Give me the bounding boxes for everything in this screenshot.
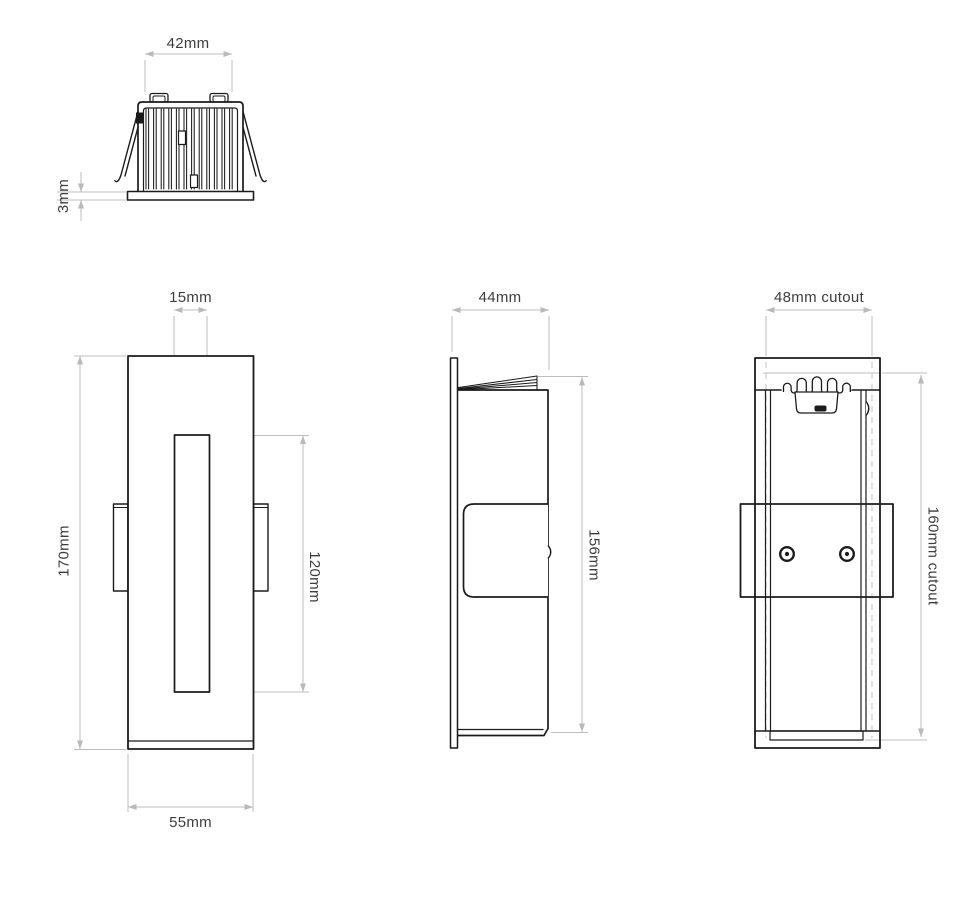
wire-port [136, 113, 144, 124]
dim-body-height: 170mm [56, 356, 127, 750]
dim-cutout-height: 160mm cutout [865, 373, 942, 740]
dim-body-width: 55mm [128, 754, 253, 831]
mounting-bracket [741, 504, 894, 597]
rear-view: 48mm cutout 160mm cutout [741, 289, 942, 748]
dimension-label: 170mm [56, 525, 73, 577]
extension-line [766, 316, 872, 356]
extension-line [128, 754, 253, 812]
extension-line [145, 60, 232, 92]
faceplate [128, 356, 254, 749]
dim-cutout-width: 48mm cutout [766, 289, 872, 356]
top-view: 42mm 3mm [55, 35, 266, 221]
dimension-label: 160mm cutout [925, 507, 942, 606]
dimension-label: 48mm cutout [774, 289, 865, 306]
fin-detail-bottom [191, 175, 198, 188]
extension-line [865, 373, 927, 740]
fixing-tab-right [254, 504, 269, 591]
spring-clip-rear [784, 377, 851, 394]
dimension-label: 42mm [167, 35, 210, 52]
dimension-label: 156mm [586, 529, 603, 581]
dimension-label: 55mm [169, 814, 212, 831]
technical-drawing: 42mm 3mm 15mm [0, 0, 974, 910]
spring-clip-side [459, 376, 538, 390]
dim-plate-thickness: 3mm [55, 172, 126, 221]
dimension-label: 3mm [55, 179, 72, 213]
screw-center [785, 552, 789, 556]
screw-right [840, 547, 854, 561]
dim-heatsink-width: 42mm [145, 35, 232, 92]
fixing-tab-left [114, 504, 129, 591]
dimension-label: 120mm [306, 551, 323, 603]
clip-latch [815, 406, 827, 412]
screw-left [780, 547, 794, 561]
rear-knob [866, 402, 869, 416]
driver-box [464, 504, 549, 597]
extension-line [452, 316, 549, 370]
dimension-label: 15mm [169, 289, 212, 306]
fin-detail-mid [179, 131, 186, 145]
drawing-page: 42mm 3mm 15mm [0, 0, 974, 910]
side-knob [548, 546, 551, 559]
dim-depth: 44mm [452, 289, 549, 370]
faceplate-edge [451, 358, 458, 748]
bezel-plate [128, 192, 254, 201]
screw-center [845, 552, 849, 556]
side-view: 44mm 156mm [451, 289, 603, 748]
extension-line [74, 356, 126, 750]
front-view: 15mm 170mm 120mm 55mm [56, 289, 324, 831]
dimension-label: 44mm [479, 289, 522, 306]
bottom-slab [770, 731, 863, 740]
